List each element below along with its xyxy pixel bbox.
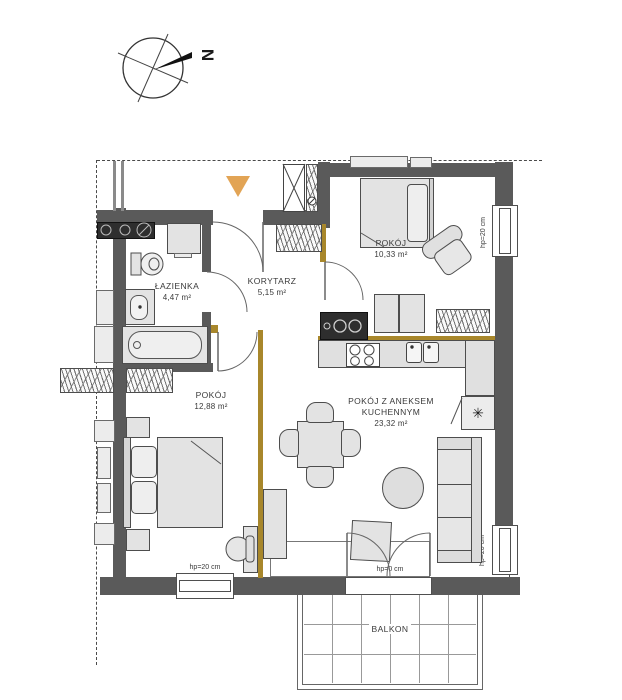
- floor-plan: N hp=20 cm hp=20 cm hp=20 cm hp=0 cm: [0, 0, 622, 700]
- hob-burner: [350, 345, 360, 355]
- door-arc: [325, 262, 363, 300]
- door-arc: [347, 533, 390, 576]
- sink-drain: [410, 345, 413, 348]
- room-label-living-kitchen: POKÓJ Z ANEKSEM KUCHENNYM 23,32 m²: [336, 396, 446, 429]
- hob-burner: [351, 357, 360, 366]
- appliance-knob: [324, 323, 330, 329]
- room-label-bedroom-large: POKÓJ 12,88 m²: [166, 390, 256, 412]
- appliance-burner: [334, 320, 346, 332]
- door-arc: [213, 222, 263, 272]
- toilet-tank: [131, 253, 141, 275]
- hob-burner: [364, 345, 374, 355]
- manifold-valve: [101, 225, 111, 235]
- bathtub-drain: [134, 342, 141, 349]
- room-label-corridor: KORYTARZ 5,15 m²: [227, 276, 317, 298]
- manifold-valve: [120, 225, 130, 235]
- door-arc: [218, 332, 257, 371]
- bed-fold-line: [191, 441, 221, 464]
- appliance-burner: [349, 320, 361, 332]
- toilet-bowl: [141, 253, 163, 275]
- door-arc: [387, 533, 430, 576]
- balcony-floor-grid: [304, 595, 476, 683]
- fridge-door-line: [451, 398, 462, 424]
- room-label-balcony: BALKON: [345, 624, 435, 635]
- room-label-bathroom: ŁAZIENKA 4,47 m²: [132, 281, 222, 303]
- basin-drain: [138, 305, 141, 308]
- sink-drain: [427, 345, 430, 348]
- room-label-bedroom-small: POKÓJ 10,33 m²: [346, 238, 436, 260]
- hob-burner: [365, 357, 374, 366]
- desk-chair-back: [246, 536, 254, 562]
